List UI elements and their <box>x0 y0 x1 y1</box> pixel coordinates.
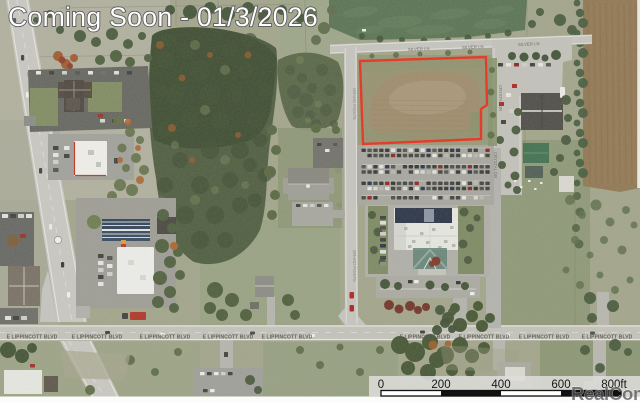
svg-text:0: 0 <box>378 379 384 391</box>
svg-text:200: 200 <box>431 379 450 391</box>
svg-text:RealComp: RealComp <box>571 383 640 402</box>
svg-text:400: 400 <box>491 379 510 391</box>
svg-text:Coming Soon - 01/3/2026: Coming Soon - 01/3/2026 <box>8 2 318 32</box>
svg-text:600: 600 <box>551 379 570 391</box>
